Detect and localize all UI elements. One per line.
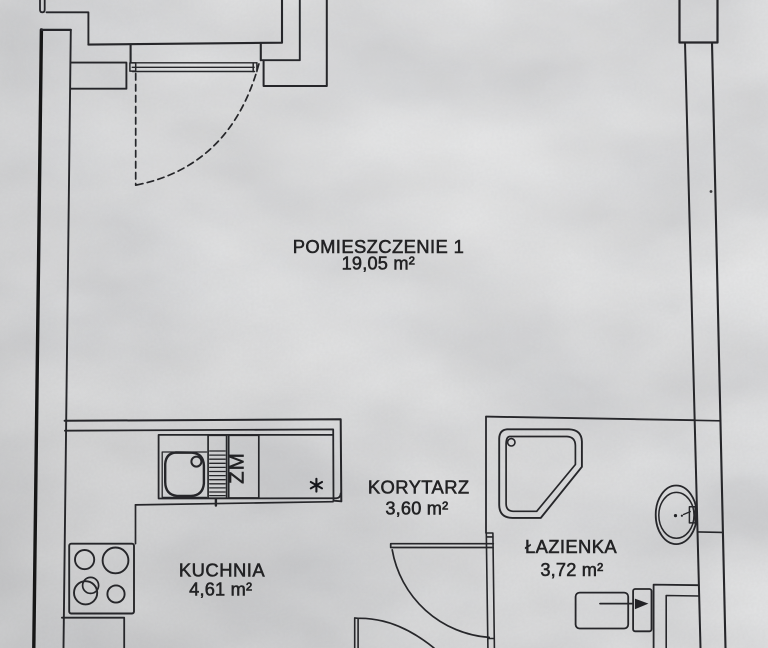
svg-text:KORYTARZ: KORYTARZ: [368, 477, 470, 498]
svg-text:ZM: ZM: [226, 452, 249, 484]
svg-text:3,60 m²: 3,60 m²: [385, 499, 448, 519]
svg-text:ŁAZIENKA: ŁAZIENKA: [525, 536, 617, 557]
svg-text:3,72 m²: 3,72 m²: [540, 560, 603, 580]
svg-text:KUCHNIA: KUCHNIA: [179, 559, 266, 580]
svg-text:19,05 m²: 19,05 m²: [342, 254, 415, 274]
svg-text:4,61 m²: 4,61 m²: [189, 580, 252, 600]
